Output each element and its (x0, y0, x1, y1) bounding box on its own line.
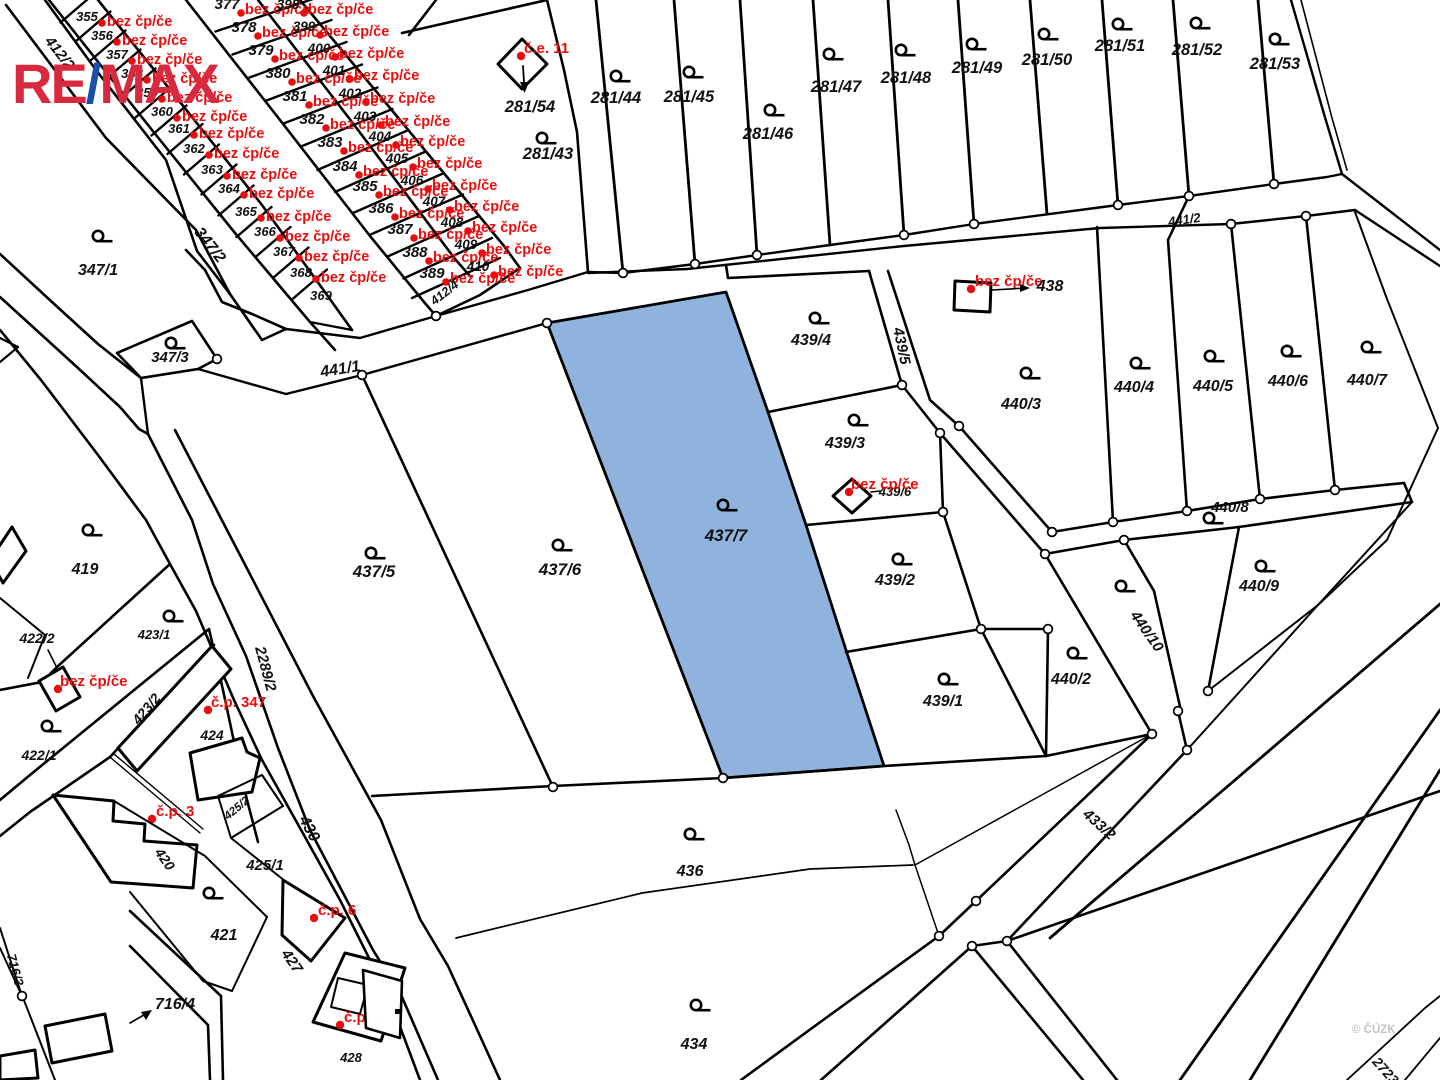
svg-text:377: 377 (214, 0, 240, 13)
svg-text:bez čp/če: bez čp/če (232, 167, 297, 183)
svg-text:369: 369 (310, 288, 332, 303)
svg-text:439/2: 439/2 (874, 572, 915, 589)
svg-text:436: 436 (676, 863, 704, 880)
svg-text:281/43: 281/43 (522, 145, 573, 163)
svg-text:410: 410 (466, 259, 490, 274)
svg-text:281/45: 281/45 (663, 88, 715, 106)
svg-text:398: 398 (277, 0, 300, 12)
svg-text:347/1: 347/1 (78, 262, 118, 279)
svg-text:bez čp/če: bez čp/če (308, 2, 373, 18)
svg-text:385: 385 (352, 178, 378, 195)
svg-text:423/1: 423/1 (137, 627, 171, 642)
svg-text:281/48: 281/48 (880, 69, 932, 87)
svg-text:425/1: 425/1 (245, 857, 284, 874)
svg-text:RE/MAX: RE/MAX (12, 52, 219, 115)
svg-text:366: 366 (254, 224, 276, 239)
svg-text:364: 364 (218, 181, 240, 196)
svg-text:bez čp/če: bez čp/če (249, 186, 314, 202)
svg-text:bez čp/če: bez čp/če (321, 270, 386, 286)
svg-text:383: 383 (317, 134, 343, 151)
svg-text:437/7: 437/7 (704, 526, 749, 545)
svg-text:428: 428 (339, 1050, 362, 1065)
svg-text:422/2: 422/2 (18, 630, 54, 646)
svg-text:bez čp/če: bez čp/če (354, 68, 419, 84)
svg-text:bez čp/če: bez čp/če (486, 242, 551, 258)
svg-text:bez čp/če: bez čp/če (400, 134, 465, 150)
svg-text:419: 419 (71, 561, 99, 578)
svg-text:402: 402 (338, 86, 362, 101)
svg-text:281/54: 281/54 (504, 98, 555, 116)
svg-text:368: 368 (290, 265, 312, 280)
svg-text:363: 363 (201, 162, 223, 177)
svg-text:405: 405 (385, 151, 409, 166)
svg-text:440/7: 440/7 (1346, 372, 1388, 389)
svg-text:bez čp/če: bez čp/če (498, 264, 563, 280)
svg-text:438: 438 (1036, 278, 1064, 295)
svg-text:bez čp/če: bez čp/če (304, 249, 369, 265)
svg-text:bez čp/če: bez čp/če (60, 673, 128, 690)
svg-text:439/4: 439/4 (790, 332, 831, 349)
svg-text:406: 406 (400, 173, 424, 188)
svg-text:434: 434 (680, 1036, 708, 1053)
svg-text:bez čp/če: bez čp/če (266, 209, 331, 225)
svg-text:bez čp/če: bez čp/če (370, 91, 435, 107)
svg-text:281/44: 281/44 (590, 89, 641, 107)
svg-text:bez čp/če: bez čp/če (432, 178, 497, 194)
svg-text:389: 389 (419, 265, 445, 282)
svg-text:bez čp/če: bez čp/če (385, 114, 450, 130)
svg-text:bez čp/če: bez čp/če (285, 229, 350, 245)
svg-text:384: 384 (332, 158, 358, 175)
svg-text:bez čp/če: bez čp/če (975, 273, 1043, 290)
svg-text:401: 401 (322, 63, 346, 78)
svg-text:440/9: 440/9 (1238, 578, 1279, 595)
svg-text:380: 380 (265, 65, 291, 82)
svg-text:439/3: 439/3 (824, 435, 865, 452)
svg-text:281/49: 281/49 (951, 59, 1003, 77)
svg-text:355: 355 (76, 9, 98, 24)
svg-text:č.p. 347: č.p. 347 (211, 694, 266, 711)
svg-text:bez čp/če: bez čp/če (214, 146, 279, 162)
svg-text:437/5: 437/5 (352, 562, 396, 581)
svg-text:716/4: 716/4 (155, 996, 195, 1013)
svg-text:378: 378 (231, 19, 257, 36)
svg-text:bez čp/če: bez čp/če (122, 33, 187, 49)
svg-text:440/5: 440/5 (1192, 378, 1234, 395)
svg-text:bez čp/če: bez čp/če (324, 24, 389, 40)
svg-text:© ČÚZK: © ČÚZK (1352, 1023, 1396, 1036)
svg-text:399: 399 (293, 19, 316, 34)
svg-text:440/6: 440/6 (1267, 373, 1308, 390)
svg-text:381: 381 (282, 88, 307, 105)
svg-text:408: 408 (440, 215, 464, 230)
svg-text:281/53: 281/53 (1249, 55, 1300, 73)
svg-text:400: 400 (307, 41, 331, 56)
svg-text:bez čp/če: bez čp/če (107, 14, 172, 30)
svg-text:421: 421 (210, 927, 238, 944)
svg-text:388: 388 (402, 244, 428, 261)
svg-text:č.p. 3: č.p. 3 (156, 803, 194, 820)
svg-text:437/6: 437/6 (538, 560, 582, 579)
svg-text:440/2: 440/2 (1050, 671, 1091, 688)
svg-text:382: 382 (299, 111, 325, 128)
svg-text:439/1: 439/1 (922, 693, 963, 710)
svg-text:440/4: 440/4 (1113, 379, 1154, 396)
svg-text:409: 409 (454, 237, 478, 252)
svg-text:386: 386 (368, 200, 394, 217)
svg-text:404: 404 (368, 129, 392, 144)
svg-text:281/50: 281/50 (1021, 51, 1073, 69)
svg-text:424: 424 (199, 727, 224, 743)
svg-text:281/51: 281/51 (1094, 37, 1145, 55)
svg-text:bez čp/če: bez čp/če (339, 46, 404, 62)
svg-text:bez čp/če: bez čp/če (454, 199, 519, 215)
svg-text:bez čp/če: bez čp/če (199, 126, 264, 142)
svg-text:387: 387 (387, 221, 413, 238)
svg-text:bez čp/če: bez čp/če (417, 156, 482, 172)
svg-text:440/8: 440/8 (1210, 499, 1249, 516)
svg-text:281/52: 281/52 (1171, 41, 1222, 59)
svg-text:407: 407 (422, 194, 447, 209)
svg-text:362: 362 (183, 141, 205, 156)
svg-text:403: 403 (353, 109, 377, 124)
svg-text:č.p. 6: č.p. 6 (318, 902, 356, 919)
svg-text:365: 365 (235, 204, 257, 219)
svg-text:bez čp/če: bez čp/če (472, 220, 537, 236)
svg-text:281/47: 281/47 (810, 78, 862, 96)
svg-text:bez čp/če: bez čp/če (851, 476, 919, 493)
svg-text:379: 379 (248, 42, 274, 59)
svg-text:347/3: 347/3 (151, 349, 189, 366)
svg-text:422/1: 422/1 (20, 747, 56, 763)
svg-text:440/3: 440/3 (1000, 396, 1041, 413)
svg-text:281/46: 281/46 (742, 125, 794, 143)
svg-text:361: 361 (168, 121, 190, 136)
svg-text:č.e. 11: č.e. 11 (524, 40, 569, 57)
svg-text:356: 356 (91, 28, 113, 43)
svg-text:367: 367 (273, 244, 295, 259)
